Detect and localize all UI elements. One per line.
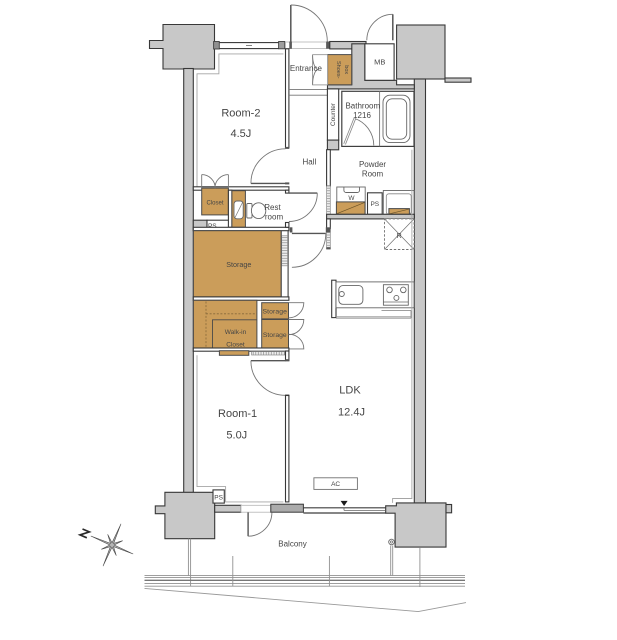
svg-text:Closet: Closet [206,201,223,207]
svg-text:room: room [265,212,284,221]
svg-text:Shoes-: Shoes- [335,61,341,79]
svg-text:12.4J: 12.4J [338,407,365,419]
svg-text:R: R [397,233,402,240]
svg-text:Closet: Closet [226,341,245,348]
svg-text:Balcony: Balcony [278,539,306,548]
svg-text:box: box [343,65,349,74]
svg-text:W: W [348,195,355,202]
svg-text:Powder: Powder [359,160,386,169]
svg-text:Storage: Storage [226,260,251,269]
svg-text:Room: Room [362,169,384,178]
svg-text:Storage: Storage [263,332,287,339]
svg-text:Counter: Counter [330,102,337,126]
svg-text:Room-1: Room-1 [218,408,257,420]
svg-text:4.5J: 4.5J [231,128,252,140]
svg-text:LDK: LDK [339,384,361,396]
svg-text:AC: AC [331,481,340,488]
svg-text:Room-2: Room-2 [221,107,260,119]
svg-text:Entrance: Entrance [290,64,323,73]
svg-text:Storage: Storage [263,308,288,315]
svg-text:Rest: Rest [264,203,281,212]
svg-text:5.0J: 5.0J [226,430,247,442]
svg-text:Hall: Hall [303,158,317,167]
svg-text:PS: PS [370,201,379,208]
svg-text:MB: MB [374,58,385,67]
svg-text:Bathroom: Bathroom [345,101,380,110]
svg-text:PS: PS [214,494,223,501]
svg-text:Walk-in: Walk-in [225,329,247,336]
